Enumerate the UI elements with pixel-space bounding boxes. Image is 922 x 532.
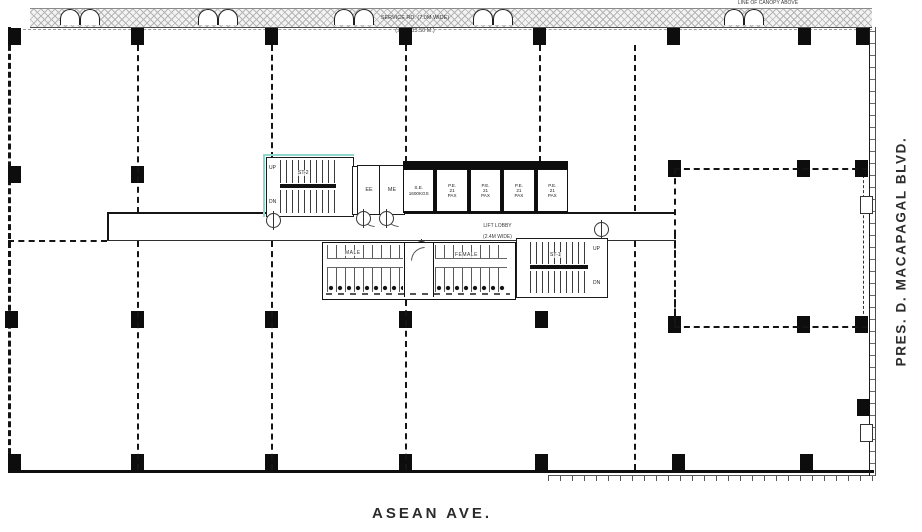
male-toilet-label: MALE — [345, 250, 361, 256]
floor-plan: SERVICE RD. (7.0M WIDE) (± EL. 13.50 M.)… — [0, 0, 922, 532]
stair-divider — [280, 184, 336, 188]
column — [399, 28, 412, 45]
street-label-east: PRES. D. MACAPAGAL BLVD. — [880, 27, 922, 476]
elevator-label: 1600KGS — [409, 191, 429, 196]
column — [535, 454, 548, 471]
stair-up-label: UP — [592, 246, 601, 252]
wc-stall-row — [327, 267, 403, 292]
toilet-counter-line — [326, 293, 510, 295]
column — [8, 454, 21, 471]
grid-bubble-icon — [266, 213, 281, 228]
stair-name-label: ST-2 — [297, 170, 310, 176]
double-door-swing-icon — [724, 9, 764, 25]
lift-lobby-line1: LIFT LOBBY — [483, 223, 511, 229]
door-swing-icon — [411, 247, 425, 261]
stair-treads — [280, 190, 336, 213]
double-door-swing-icon — [198, 9, 238, 25]
partition-line — [634, 45, 636, 211]
grid-bubble-icon — [356, 211, 371, 226]
column — [667, 28, 680, 45]
toilet-block: MALE FEMALE — [322, 242, 516, 300]
stair-up-label: UP — [268, 165, 277, 171]
service-road-line1: SERVICE RD. (7.0M WIDE) — [381, 15, 449, 21]
column — [800, 454, 813, 471]
stair-name-label: ST-1 — [549, 252, 562, 258]
column — [533, 28, 546, 45]
stair-dn-label: DN — [268, 199, 277, 205]
grid-bubble-icon — [594, 222, 609, 237]
curtain-wall-step — [860, 424, 873, 442]
column — [131, 28, 144, 45]
partition-line — [137, 241, 139, 470]
toilet-wall — [404, 243, 405, 297]
stair-divider — [530, 265, 588, 269]
female-toilet-label: FEMALE — [455, 252, 478, 258]
elevator-label: PAX — [548, 193, 557, 198]
column — [535, 311, 548, 328]
elevator-label: PAX — [481, 193, 490, 198]
electrical-room-label: EE — [365, 187, 372, 193]
tenant-unit-outline — [674, 168, 868, 328]
column — [857, 399, 870, 416]
double-door-swing-icon — [60, 9, 100, 25]
partition-line — [405, 300, 407, 470]
elevator-label: PAX — [514, 193, 523, 198]
lavatory-row — [327, 245, 403, 259]
elevator-car: P.E. 21 PAX — [470, 169, 501, 212]
toilet-wall — [433, 243, 434, 297]
stair-dn-label: DN — [592, 280, 601, 286]
partition-line — [271, 241, 273, 470]
lift-lobby-line2: (2.4M WIDE) — [483, 234, 512, 240]
mechanical-room-label: ME — [388, 187, 396, 193]
south-sidewalk-line — [548, 475, 874, 481]
column — [265, 28, 278, 45]
elevator-car: P.E. 21 PAX — [503, 169, 534, 212]
street-label-south: ASEAN AVE. — [322, 505, 542, 522]
elevator-label: PAX — [448, 193, 457, 198]
partition-line — [405, 45, 407, 162]
partition-line — [634, 241, 636, 470]
street-east-text: PRES. D. MACAPAGAL BLVD. — [894, 137, 909, 367]
column — [798, 28, 811, 45]
service-road-label: SERVICE RD. (7.0M WIDE) (± EL. 13.50 M.) — [352, 9, 478, 34]
column — [672, 454, 685, 471]
partition-line — [539, 45, 541, 162]
elevator-bank-wall — [403, 161, 568, 168]
double-door-swing-icon — [473, 9, 513, 25]
mechanical-room: ME — [379, 165, 405, 215]
elevator-bank: S.E. 1600KGS P.E. 21 PAX P.E. 21 PAX P.E… — [403, 168, 568, 213]
elevator-car: S.E. 1600KGS — [403, 169, 434, 212]
corridor-end-wall — [107, 212, 109, 240]
partition-line — [137, 45, 139, 213]
partition-line — [271, 45, 273, 158]
electrical-room: EE — [357, 165, 381, 215]
column — [5, 311, 18, 328]
grid-bubble-icon — [379, 211, 394, 226]
column — [8, 166, 21, 183]
stair-treads — [530, 271, 588, 293]
east-curtain-wall — [869, 27, 876, 476]
canopy-note: LINE OF CANOPY ABOVE — [712, 1, 824, 7]
column — [856, 28, 869, 45]
column — [8, 28, 21, 45]
partition-line — [8, 240, 107, 242]
wc-stall-row — [435, 267, 507, 292]
elevator-car: P.E. 21 PAX — [537, 169, 568, 212]
elevator-car: P.E. 21 PAX — [436, 169, 467, 212]
west-wall — [8, 27, 11, 472]
